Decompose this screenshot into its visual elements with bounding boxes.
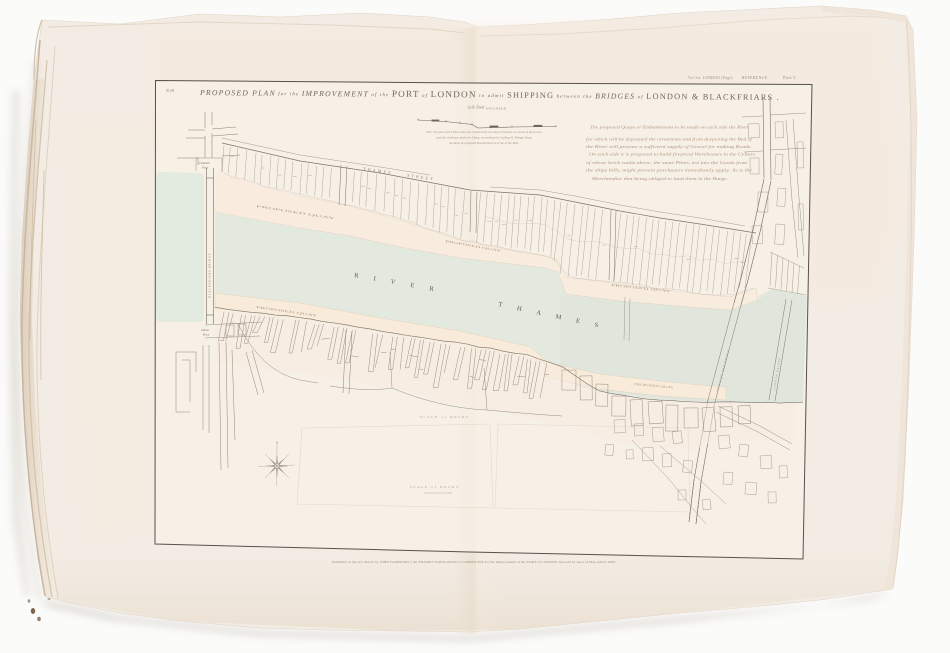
svg-text:N.19: N.19 — [165, 88, 175, 93]
svg-text:The proposed Quays or Embankme: The proposed Quays or Embankments to be … — [590, 125, 749, 130]
svg-text:Plate V.: Plate V. — [783, 76, 797, 80]
svg-text:SCALE of DOCKS: SCALE of DOCKS — [420, 415, 470, 419]
svg-text:to the thousand of each Side: to the thousand of each Side — [424, 492, 453, 495]
svg-text:Merchandise that being obliged: Merchandise that being obliged to land t… — [591, 176, 728, 181]
svg-text:REFERENCE: REFERENCE — [742, 76, 768, 80]
svg-text:ENGINEER.: ENGINEER. — [486, 107, 508, 111]
svg-text:On each side it is proposed to: On each side it is proposed to build fir… — [589, 152, 755, 157]
svg-text:Albion: Albion — [201, 329, 209, 332]
svg-text:Published as the Act directs b: Published as the Act directs by JOHN FAI… — [332, 561, 616, 564]
svg-text:BLACKFRIARS BRIDGE: BLACKFRIARS BRIDGE — [209, 253, 212, 298]
svg-text:SCALE of DOCKS: SCALE of DOCKS — [410, 485, 460, 489]
svg-text:for which will be deposited th: for which will be deposited the ornament… — [586, 137, 753, 142]
svg-text:by R. Dodd: by R. Dodd — [468, 106, 484, 110]
svg-text:Place: Place — [202, 166, 209, 170]
svg-text:the River will procure a suffi: the River will procure a sufficient supp… — [586, 144, 752, 149]
svg-text:Place: Place — [203, 334, 210, 337]
svg-text:Chatham: Chatham — [199, 161, 210, 165]
svg-text:the River & proposed Improveme: the River & proposed Improvement is to t… — [449, 141, 519, 145]
svg-text:Vol.1st. LONDON (Page): Vol.1st. LONDON (Page) — [688, 76, 733, 80]
